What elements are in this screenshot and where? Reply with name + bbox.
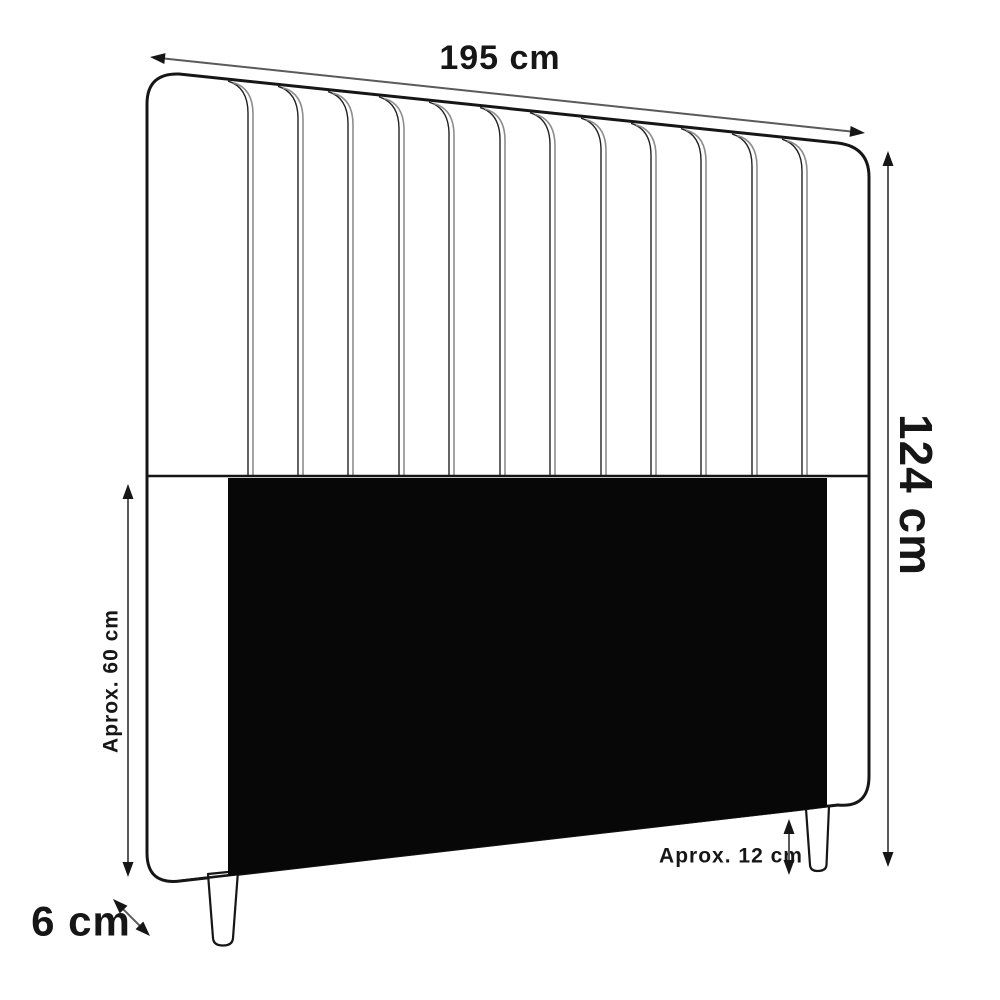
- lower-panel-height-dimension: Aprox. 60 cm: [99, 484, 133, 877]
- leg-height-label: Aprox. 12 cm: [659, 844, 803, 867]
- arrowhead-icon: [784, 860, 795, 875]
- headboard-dimension-diagram: 195 cm 124 cm Aprox. 60 cm Aprox. 12 cm …: [0, 0, 1000, 1000]
- dark-lower-panel: [228, 478, 827, 876]
- right-leg: [806, 806, 829, 871]
- lower-panel-height-label: Aprox. 60 cm: [99, 609, 122, 753]
- leg-height-dimension: Aprox. 12 cm: [659, 819, 803, 875]
- left-leg: [208, 871, 238, 946]
- diagram-canvas: 195 cm 124 cm Aprox. 60 cm Aprox. 12 cm …: [0, 0, 1000, 1000]
- arrowhead-icon: [123, 484, 134, 499]
- arrowhead-icon: [850, 126, 865, 137]
- arrowhead-icon: [883, 852, 894, 867]
- width-dimension-label: 195 cm: [439, 39, 560, 77]
- height-dimension: 124 cm: [883, 151, 942, 867]
- arrowhead-icon: [123, 862, 134, 877]
- arrowhead-icon: [150, 53, 165, 64]
- arrowhead-icon: [784, 819, 795, 834]
- arrowhead-icon: [883, 151, 894, 166]
- leg-width-dimension: 6 cm: [31, 898, 150, 945]
- height-dimension-label: 124 cm: [890, 414, 942, 576]
